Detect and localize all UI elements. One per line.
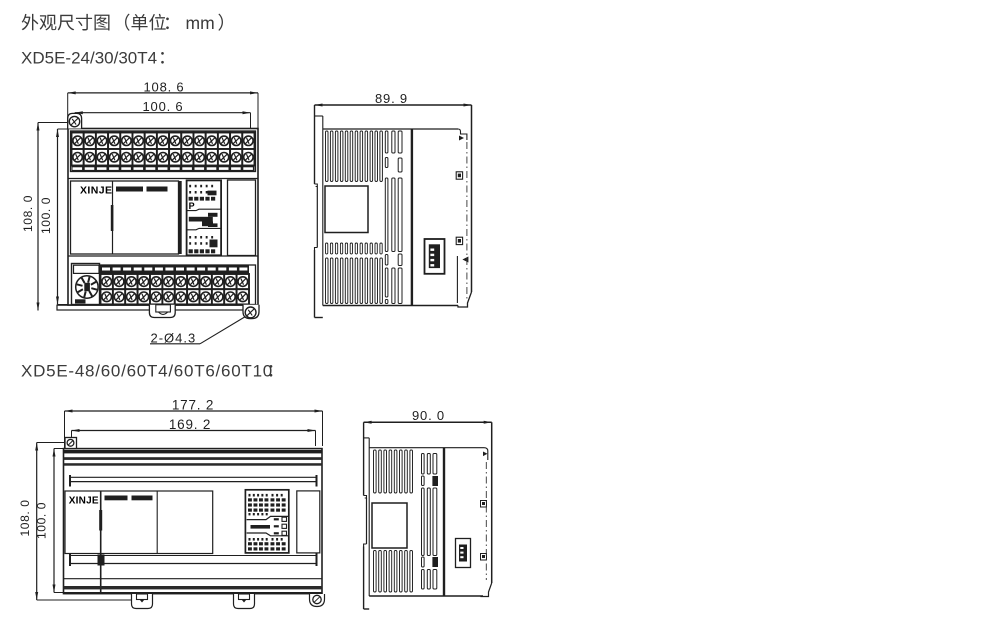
svg-text:XINJE: XINJE [80,185,112,197]
svg-text:mm: mm [186,13,215,33]
svg-text:89. 9: 89. 9 [375,91,408,106]
svg-text:XD5E-24/30/30T4: XD5E-24/30/30T4 [21,49,157,68]
svg-text:108. 0: 108. 0 [21,195,35,232]
svg-text:100. 0: 100. 0 [35,502,49,539]
svg-text:108. 0: 108. 0 [18,500,32,537]
svg-text:90. 0: 90. 0 [412,408,445,423]
svg-text:XD5E-48/60/60T4/60T6/60T10: XD5E-48/60/60T4/60T6/60T10 [21,362,273,381]
svg-text:100. 6: 100. 6 [143,99,184,114]
svg-text:100. 0: 100. 0 [39,197,53,234]
svg-text:177. 2: 177. 2 [172,398,214,413]
svg-text:XINJE: XINJE [69,496,99,507]
svg-text:P: P [189,201,195,211]
svg-text:108. 6: 108. 6 [144,80,185,95]
svg-text:169. 2: 169. 2 [169,417,211,432]
